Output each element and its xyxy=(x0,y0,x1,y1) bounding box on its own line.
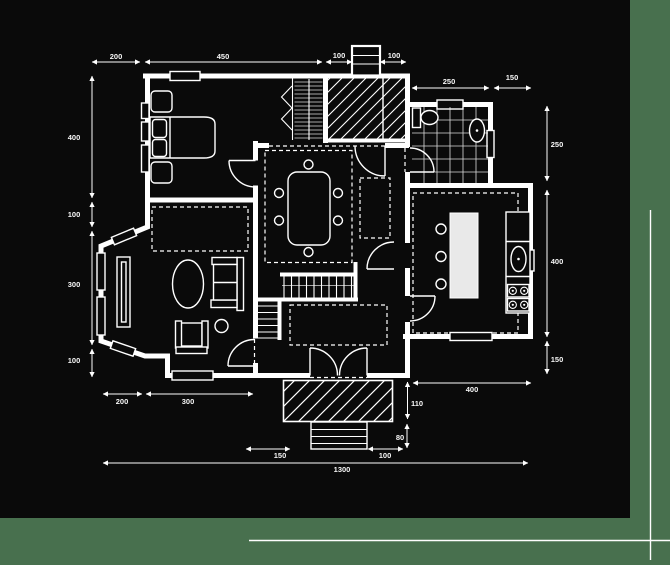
stool xyxy=(436,279,446,289)
dim-label: 150 xyxy=(551,355,564,364)
floor-plan-page: 200 450 100 100 250 150 400 100 300 100 … xyxy=(0,0,670,560)
stool xyxy=(436,252,446,262)
dining-chair xyxy=(304,160,313,169)
dim-label: 1300 xyxy=(334,465,351,474)
sofa xyxy=(211,258,244,311)
dim-label: 80 xyxy=(396,433,404,442)
dining-chair xyxy=(275,216,284,225)
bathroom-sink xyxy=(470,119,485,142)
kitchen-bottom-window xyxy=(450,333,492,341)
dim-label: 100 xyxy=(68,356,81,365)
nightstand-bottom xyxy=(151,162,172,183)
sideboard-inner xyxy=(122,262,127,322)
dim-label: 400 xyxy=(68,133,81,142)
armchair xyxy=(176,321,209,354)
porch-steps xyxy=(311,422,367,449)
bay-window-1 xyxy=(97,253,105,290)
dim-label: 400 xyxy=(551,257,564,266)
dining-table xyxy=(288,172,330,245)
dim-label: 100 xyxy=(333,51,346,60)
dim-label: 400 xyxy=(466,385,479,394)
bedroom-top-window xyxy=(170,72,200,81)
dim-label: 100 xyxy=(68,210,81,219)
dim-label: 300 xyxy=(182,397,195,406)
bedroom-left-window-3 xyxy=(142,145,150,172)
stool xyxy=(436,224,446,234)
coffee-table-oval xyxy=(173,260,204,308)
dim-label: 250 xyxy=(443,77,456,86)
dim-label: 150 xyxy=(506,73,519,82)
dim-label: 200 xyxy=(110,52,123,61)
chimney xyxy=(352,46,380,76)
dining-chair xyxy=(304,248,313,257)
nightstand-top xyxy=(151,91,172,112)
dining-chair xyxy=(334,216,343,225)
dim-label: 150 xyxy=(274,451,287,460)
dining-chair xyxy=(275,189,284,198)
dim-label: 100 xyxy=(388,51,401,60)
dim-label: 110 xyxy=(411,399,423,408)
dining-chair xyxy=(334,189,343,198)
kitchen-island xyxy=(450,213,478,298)
dim-label: 100 xyxy=(379,451,392,460)
bedroom-left-window-2 xyxy=(142,122,150,141)
bay-window-2 xyxy=(97,297,105,335)
dim-label: 300 xyxy=(68,280,81,289)
bedroom-left-window-1 xyxy=(142,103,150,119)
dim-label: 450 xyxy=(217,52,230,61)
dim-label: 250 xyxy=(551,140,564,149)
hatched-area xyxy=(328,79,407,141)
side-table xyxy=(215,320,228,333)
dim-label: 200 xyxy=(116,397,129,406)
pillow-2 xyxy=(153,140,167,157)
living-bottom-window xyxy=(172,371,213,380)
bathroom-right-window xyxy=(487,131,494,158)
porch-hatched xyxy=(284,381,393,422)
pillow-1 xyxy=(153,120,167,138)
kitchen-sink xyxy=(511,247,526,272)
